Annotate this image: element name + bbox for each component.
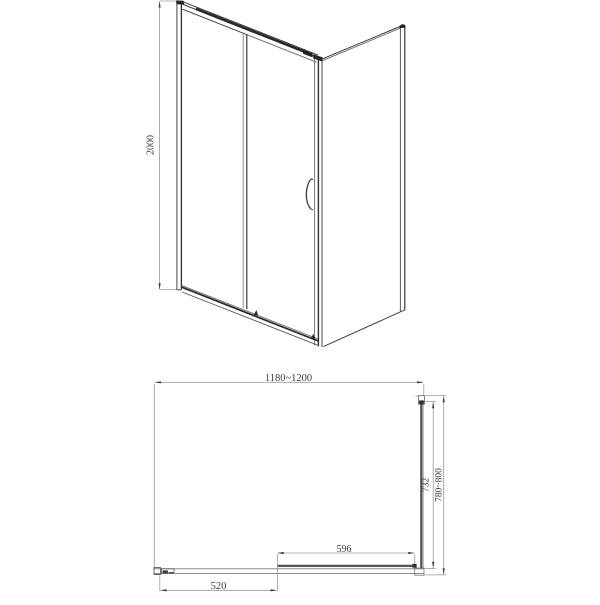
svg-text:732: 732 [422,478,432,493]
svg-text:2000: 2000 [146,135,157,155]
svg-text:1180~1200: 1180~1200 [265,373,312,384]
svg-text:596: 596 [337,544,352,555]
svg-text:780~800: 780~800 [434,468,444,502]
svg-text:520: 520 [211,581,227,592]
